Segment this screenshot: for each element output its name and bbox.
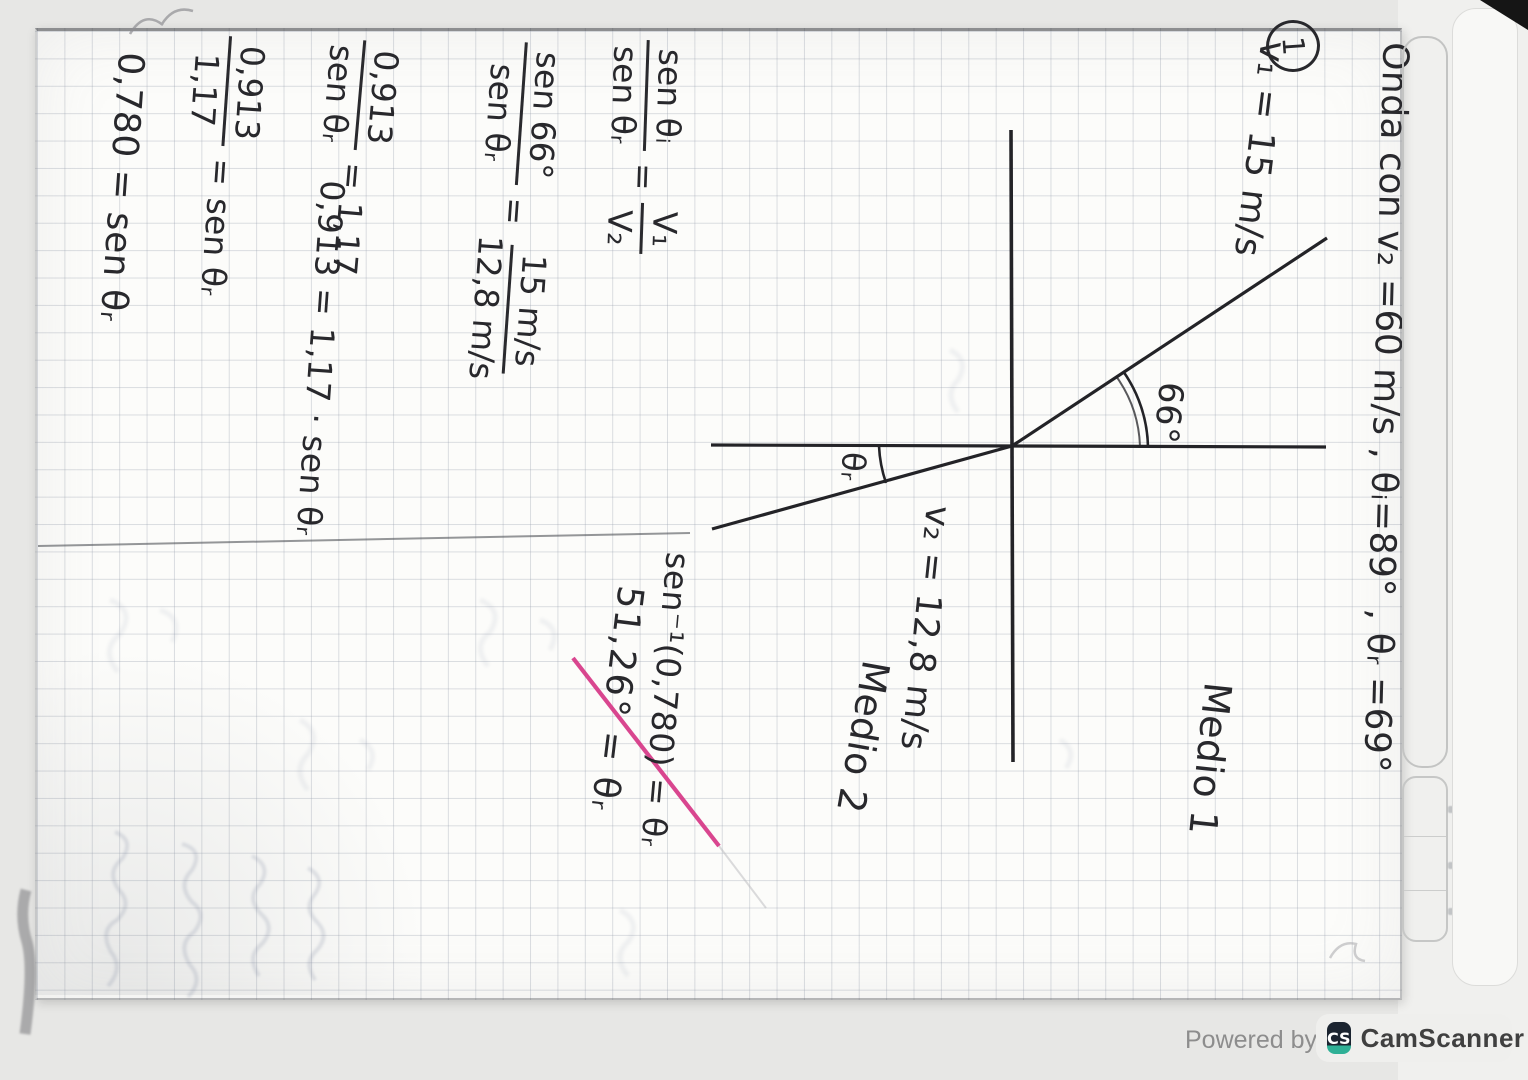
- page-edge-strip-1: [1402, 36, 1448, 768]
- fraction-velocities: 15 m/s 12,8 m/s: [463, 234, 553, 384]
- strip-divider: [1404, 836, 1446, 837]
- fraction-denominator: sen θᵣ: [478, 62, 523, 162]
- normal-line: [711, 445, 1326, 447]
- scanned-page-canvas: Onda con v₂ =60 m/s , θᵢ=89° , θᵣ =69° 1…: [0, 0, 1528, 1080]
- notebook-crease-line: [38, 533, 690, 546]
- camscanner-brand: CamScanner: [1361, 1023, 1525, 1054]
- corner-shadow-wedge: [1480, 0, 1528, 30]
- page-edge-strip-2: [1402, 776, 1448, 942]
- camscanner-watermark: CS CamScanner: [1316, 1014, 1512, 1062]
- page-edge-strip-3: [1452, 8, 1518, 986]
- equals-sign: =: [624, 162, 664, 191]
- powered-by-text: Powered by: [1185, 1026, 1317, 1055]
- result-highlight-tail: [719, 846, 766, 908]
- equation-snell: sen θᵢ sen θᵣ = V₁ V₂: [601, 39, 689, 256]
- strip-divider: [1404, 890, 1446, 891]
- fraction-numerator: sen θᵢ: [643, 40, 688, 152]
- fraction-velocities: V₁ V₂: [601, 201, 683, 256]
- fraction-denominator: sen θᵣ: [605, 45, 647, 144]
- fraction-denominator: V₂: [601, 209, 641, 246]
- refraction-angle-arc: [879, 446, 886, 483]
- incidence-angle-arc: [1123, 371, 1148, 447]
- incidence-angle-arc2: [1116, 376, 1140, 446]
- fraction-numerator: 0,913: [222, 36, 271, 149]
- fraction: 0,913 1,17: [183, 34, 271, 150]
- camscanner-logo-icon: CS: [1327, 1022, 1351, 1054]
- fraction: 0,913 sen θᵣ: [316, 37, 406, 154]
- camscanner-logo-text: CS: [1327, 1029, 1351, 1048]
- fraction-sines: sen θᵢ sen θᵣ: [605, 39, 689, 153]
- equals-sign: =: [494, 196, 535, 226]
- incidence-angle-label: 66°: [1145, 380, 1191, 446]
- fraction-denominator: 1,17: [184, 52, 228, 128]
- fraction-numerator: V₁: [640, 203, 683, 256]
- equals-sign: =: [201, 157, 242, 187]
- fraction-sines: sen 66° sen θᵣ: [477, 40, 567, 189]
- rhs-value: sen θᵣ: [193, 197, 239, 297]
- handwritten-content-layer: Onda con v₂ =60 m/s , θᵢ=89° , θᵣ =69° 1…: [0, 0, 1528, 1080]
- refraction-angle-label: θᵣ: [833, 451, 873, 482]
